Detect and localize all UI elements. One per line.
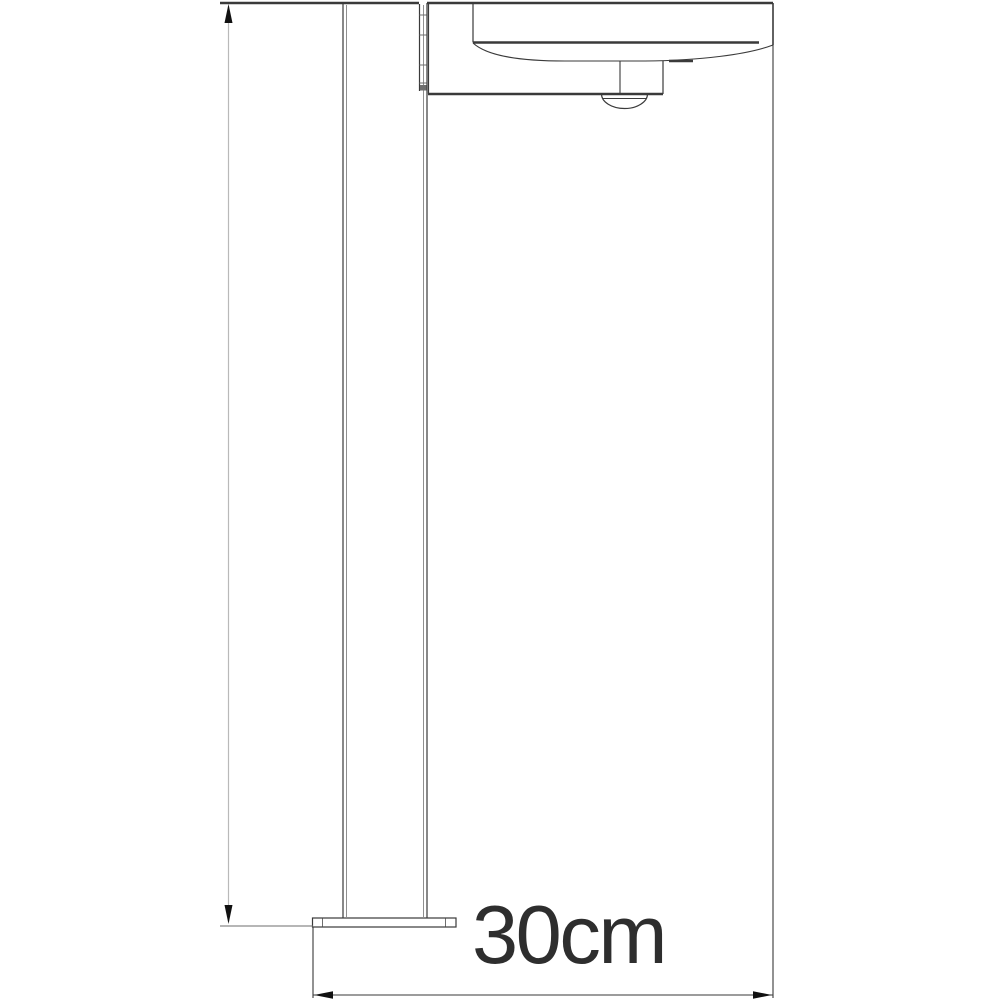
arrowhead-down-icon bbox=[225, 905, 233, 924]
bollard-light-drawing bbox=[0, 0, 1000, 1000]
arrowhead-right-icon bbox=[753, 991, 772, 998]
lamp-shade-curve bbox=[473, 43, 773, 61]
post-inner-edges bbox=[347, 5, 424, 917]
arrowhead-up-icon bbox=[225, 4, 233, 23]
sensor-dome bbox=[602, 94, 648, 109]
base-plate bbox=[313, 918, 457, 927]
hinge-pin bbox=[420, 85, 427, 91]
arrowhead-left-icon bbox=[314, 991, 333, 998]
post bbox=[343, 3, 427, 918]
drawing-canvas: 30cm bbox=[0, 0, 1000, 1000]
width-dimension-label: 30cm bbox=[472, 893, 665, 976]
